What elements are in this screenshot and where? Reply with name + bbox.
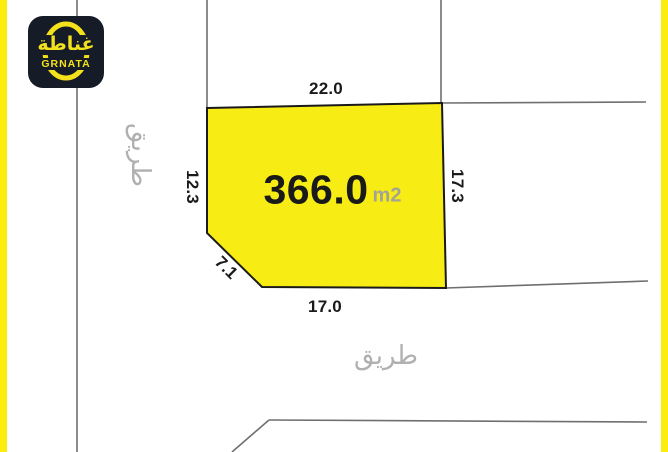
dim-label-left: 12.3 [182,170,202,204]
grnata-logo: غناطة GRNATA [28,16,104,88]
left-accent-stripe [0,0,7,452]
dim-label-bottom: 17.0 [308,297,342,317]
road-label-bottom: طريق [354,341,418,371]
road-label-left: طريق [125,123,155,187]
dim-label-top: 22.0 [309,79,343,99]
plot-area-unit: m2 [373,185,402,208]
road-bottom-boundary-line [269,420,647,422]
dim-label-right: 17.3 [447,169,467,203]
logo-arabic-text: غناطة [35,35,96,55]
plot-plan-canvas: 22.0 12.3 7.1 17.3 17.0 366.0 m2 طريق طر… [0,0,668,452]
parcel-line-right-bottom [446,281,648,288]
plot-area-value: 366.0 [263,167,368,214]
road-bottom-diagonal-line [232,420,269,452]
parcel-line-right-top [443,102,646,103]
right-accent-stripe [661,0,668,452]
logo-latin-text: GRNATA [40,58,91,70]
